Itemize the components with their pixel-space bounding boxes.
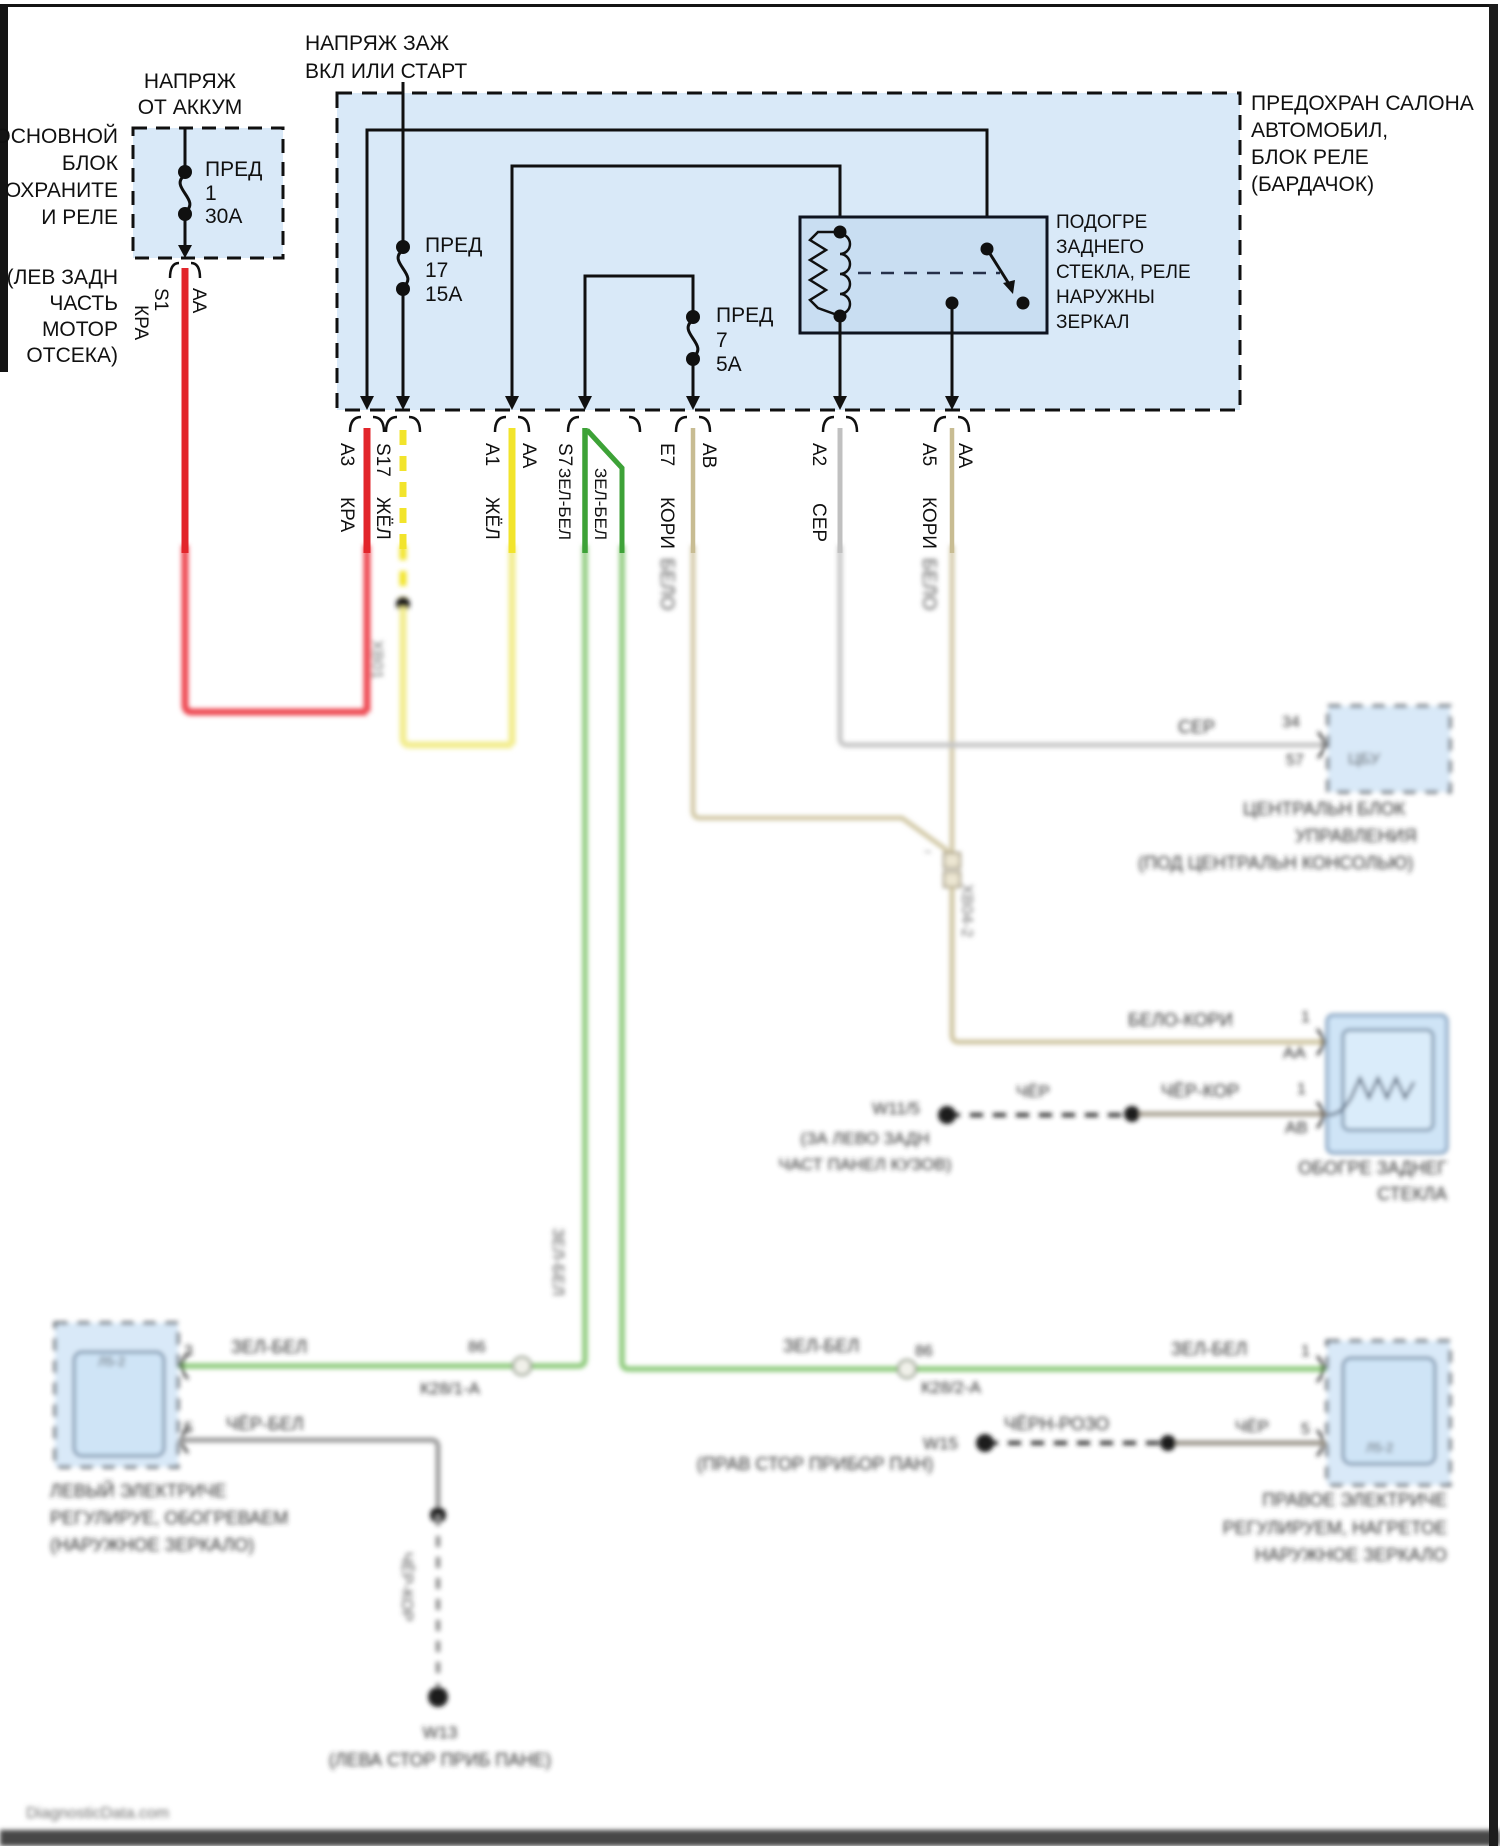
main-block-label-3: ОХРАНИТЕ	[5, 179, 118, 202]
wire-label-zelbel-vertical: ЗЕЛ-БЕЛ	[549, 1228, 566, 1296]
rw-pin-ab: AB	[1285, 1118, 1308, 1137]
relay-label-5: ЗЕРКАЛ	[1056, 312, 1129, 333]
wire-label-cherkor: ЧЁР-КОР	[1161, 1081, 1239, 1101]
connector-tilde: ~	[924, 844, 932, 859]
pin-a5-aa: AA	[954, 443, 975, 469]
wire-label-zelbel-mid: ЗЕЛ-БЕЛ	[783, 1336, 859, 1356]
diagram-svg: ХВ01 ЗЕЛ-БЕЛ ~ ХВ04-2 БЕЛО БЕЛО СЕР 34 5…	[0, 0, 1500, 1846]
wire-label-kori-2: КОРИ	[918, 497, 939, 549]
ground-w15-label: W15	[923, 1434, 958, 1453]
left-mirror-label-2: РЕГУЛИРУЕ, ОБОГРЕВАЕМ	[50, 1508, 288, 1528]
lm-pin1-number: 3	[184, 1343, 193, 1360]
pin-a2: A2	[808, 443, 829, 466]
pin-a1: A1	[481, 443, 502, 466]
lm-pin2-number: 5	[184, 1420, 193, 1437]
wire-zelbel-right-blur	[622, 545, 1327, 1369]
pin-a5: A5	[918, 443, 939, 466]
pin-s17: S17	[372, 443, 393, 477]
wire-label-cherkor-vertical: ЧЁР-КОР	[398, 1552, 416, 1622]
interior-box-label-4: (БАРДАЧОК)	[1251, 173, 1374, 196]
wire-zhel-pale-blur	[403, 545, 512, 745]
wire-label-zelbel-1: ЗЕЛ-БЕЛ	[555, 468, 574, 540]
ccu-label-1: ЦЕНТРАЛЬН БЛОК	[1243, 799, 1406, 819]
rw-pin1-number: 1	[1301, 1009, 1310, 1026]
rw-pin-aa: AA	[1283, 1043, 1306, 1062]
wire-ser-blur	[840, 545, 1328, 745]
interior-box-label-2: АВТОМОБИЛ,	[1251, 119, 1388, 142]
right-mirror-inner-label: Л5-2	[1366, 1440, 1393, 1455]
left-mirror-inner-label: Л5-2	[98, 1354, 125, 1369]
wire-label-belokori: БЕЛО-КОРИ	[1128, 1010, 1233, 1030]
relay-switch-contact-dot	[1017, 297, 1030, 310]
wire-label-zhel-1: ЖЁЛ	[372, 497, 393, 540]
wire-cherbel-run	[178, 1440, 438, 1515]
fuse1-dot-top	[178, 165, 192, 179]
wire-label-zelbel-left: ЗЕЛ-БЕЛ	[231, 1337, 307, 1357]
ccu-inner-label: ЦБУ	[1348, 751, 1381, 768]
watermark: DiagnosticData.com	[26, 1805, 169, 1822]
left-mirror-label-3: (НАРУЖНОЕ ЗЕРКАЛО)	[50, 1535, 254, 1555]
k282-label: К28/2-А	[921, 1378, 982, 1397]
wire-label-kori-1: КОРИ	[656, 497, 677, 549]
right-mirror-label-3: НАРУЖНОЕ ЗЕРКАЛО	[1255, 1545, 1447, 1565]
main-block-loc-4: ОТСЕКА)	[26, 344, 118, 367]
pin-e7: E7	[656, 443, 677, 466]
page-border-top	[0, 4, 1497, 7]
ccu-pin-number2: 57	[1286, 752, 1304, 769]
relay-label-3: СТЕКЛА, РЕЛЕ	[1056, 262, 1191, 283]
rear-window-label-2: СТЕКЛА	[1377, 1184, 1447, 1204]
fuse7-label-2: 7	[716, 329, 728, 352]
wire-label-belo-1: БЕЛО	[656, 558, 677, 610]
wire-label-zhel-2: ЖЁЛ	[481, 497, 502, 540]
pin-brackets	[350, 417, 969, 432]
main-block-label-1: ОСНОВНОЙ	[0, 124, 118, 148]
pin-s7: S7	[554, 443, 575, 466]
relay-label-2: ЗАДНЕГО	[1056, 237, 1144, 258]
page-border-right	[1489, 4, 1498, 1846]
rw-pin2-number: 1	[1297, 1081, 1306, 1098]
relay-label-4: НАРУЖНЫ	[1056, 287, 1155, 308]
main-block-label-2: БЛОК	[62, 152, 119, 175]
ground-w115-label: W11/5	[872, 1099, 920, 1118]
wire-label-cher-mid: ЧЁР	[1016, 1082, 1050, 1101]
ccu-box	[1328, 706, 1450, 792]
inline-connector-k282	[898, 1360, 916, 1378]
ground-w13-label: W13	[423, 1723, 458, 1742]
rear-window-label-1: ОБОГРЕ ЗАДНЕГ	[1298, 1158, 1447, 1178]
k281-label: К28/1-А	[420, 1379, 481, 1398]
fuse7-label-1: ПРЕД	[716, 304, 773, 327]
main-block-loc-2: ЧАСТЬ	[49, 292, 118, 315]
main-block-label-4: И РЕЛЕ	[41, 206, 118, 229]
pin-s1: S1	[150, 288, 171, 311]
junction-dot-w15-right	[1160, 1435, 1176, 1451]
connector-label-xb042: ХВ04-2	[958, 884, 975, 937]
rm-pin1-number: 1	[1301, 1343, 1310, 1360]
relay-label-1: ПОДОГРЕ	[1056, 212, 1147, 233]
ignition-title-1: НАПРЯЖ ЗАЖ	[305, 32, 450, 55]
blurred-lower-region: ХВ01 ЗЕЛ-БЕЛ ~ ХВ04-2 БЕЛО БЕЛО СЕР 34 5…	[0, 545, 1500, 1846]
ccu-label-2: УПРАВЛЕНИЯ	[1295, 826, 1417, 846]
k281-pin: 86	[468, 1339, 486, 1356]
connector-label-xb01: ХВ01	[368, 640, 385, 679]
wire-label-zelbel-2: ЗЕЛ-БЕЛ	[591, 468, 610, 540]
wire-label-ser-top: СЕР	[808, 503, 829, 542]
wire-label-belo-2: БЕЛО	[918, 558, 939, 610]
inline-connector-upper	[944, 853, 960, 868]
wiring-diagram-page: ХВ01 ЗЕЛ-БЕЛ ~ ХВ04-2 БЕЛО БЕЛО СЕР 34 5…	[0, 0, 1500, 1846]
interior-box-label-3: БЛОК РЕЛЕ	[1251, 146, 1369, 169]
inline-connector-lower	[944, 872, 960, 887]
ccu-label-3: (ПОД ЦЕНТРАЛЬН КОНСОЛЬЮ)	[1138, 853, 1413, 873]
right-mirror-label-1: ПРАВОЕ ЭЛЕКТРИЧЕ	[1262, 1490, 1447, 1510]
wire-label-chernrozo: ЧЁРН-РОЗО	[1004, 1414, 1109, 1434]
ground-w15-loc: (ПРАВ СТОР ПРИБОР ПАН)	[697, 1454, 934, 1474]
fuse17-label-2: 17	[425, 259, 448, 282]
ignition-title-2: ВКЛ ИЛИ СТАРТ	[305, 60, 467, 83]
ground-dot-w115	[938, 1106, 956, 1124]
wire-label-zelbel-right: ЗЕЛ-БЕЛ	[1171, 1339, 1247, 1359]
fuse17-dot-top	[396, 240, 410, 254]
fuse1-label-3: 30А	[205, 205, 242, 228]
battery-title-2: ОТ АККУМ	[138, 96, 243, 119]
wire-label-kra-battery: КРА	[130, 305, 151, 340]
left-mirror-label-1: ЛЕВЫЙ ЭЛЕКТРИЧЕ	[50, 1480, 226, 1501]
fuse1-label-2: 1	[205, 182, 217, 205]
wire-label-kra: КРА	[336, 497, 357, 532]
ground-w115-loc-1: (ЗА ЛЕВО ЗАДН	[800, 1129, 929, 1148]
wire-kori-e7-blur	[693, 545, 948, 851]
right-mirror-label-2: РЕГУЛИРУЕМ, НАГРЕТОЕ	[1223, 1518, 1447, 1538]
pin-a3: A3	[336, 443, 357, 466]
fuse17-label-1: ПРЕД	[425, 234, 482, 257]
wire-label-cher-right: ЧЁР	[1235, 1417, 1269, 1436]
page-bottom-bar	[0, 1830, 1500, 1846]
fuse17-label-3: 15А	[425, 283, 462, 306]
rm-pin2-number: 5	[1301, 1421, 1310, 1438]
interior-box-label-1: ПРЕДОХРАН САЛОНА	[1251, 92, 1474, 115]
k282-pin: 86	[915, 1343, 933, 1360]
pin-e7-ab: AB	[698, 443, 719, 468]
fuse7-dot-top	[686, 310, 700, 324]
wire-label-ser: СЕР	[1178, 717, 1215, 737]
wire-kra-blur	[185, 545, 367, 712]
pin-a1-aa: AA	[518, 443, 539, 469]
main-block-loc-1: (ЛЕВ ЗАДН	[7, 266, 118, 289]
sharp-top-region: НАПРЯЖ ОТ АККУМ ОСНОВНОЙ БЛОК ОХРАНИТЕ И…	[0, 4, 1498, 1846]
ground-dot-w13	[428, 1687, 448, 1707]
rear-window-inner	[1343, 1030, 1433, 1130]
battery-title-1: НАПРЯЖ	[144, 70, 237, 93]
ground-w115-loc-2: ЧАСТ ПАНЕЛ КУЗОВ)	[779, 1155, 952, 1174]
fuse1-label-1: ПРЕД	[205, 158, 262, 181]
pin-s1-aa: AA	[188, 288, 209, 314]
inline-connector-k281	[513, 1357, 531, 1375]
wire-label-cherbel: ЧЁР-БЕЛ	[226, 1414, 304, 1434]
main-block-loc-3: МОТОР	[42, 318, 118, 341]
ground-w13-loc: (ЛЕВА СТОР ПРИБ ПАНЕ)	[329, 1750, 551, 1770]
fuse7-label-3: 5А	[716, 353, 742, 376]
ground-dot-w15	[976, 1434, 994, 1452]
ccu-pin-number: 34	[1282, 714, 1300, 731]
